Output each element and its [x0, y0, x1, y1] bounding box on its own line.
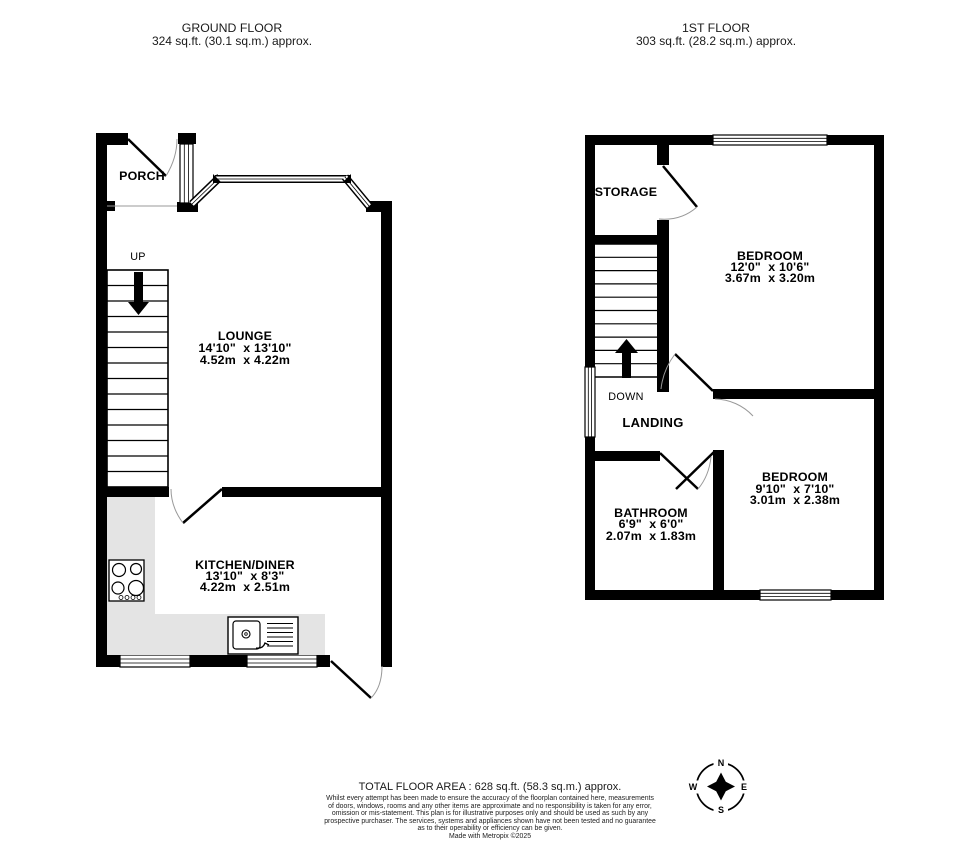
- first-floor-header: 1ST FLOOR 303 sq.ft. (28.2 sq.m.) approx…: [566, 22, 866, 48]
- porch-label: PORCH: [92, 169, 192, 183]
- total-floor-area: TOTAL FLOOR AREA : 628 sq.ft. (58.3 sq.m…: [0, 781, 980, 793]
- kitchen-label: KITCHEN/DINER 13'10" x 8'3" 4.22m x 2.51…: [145, 560, 345, 593]
- stairs-down-arrow-icon: [615, 339, 638, 378]
- bedroom2-window: [760, 590, 831, 600]
- lounge-label: LOUNGE 14'10" x 13'10" 4.52m x 4.22m: [145, 330, 345, 366]
- disclaimer-line: prospective purchaser. The services, sys…: [0, 818, 980, 826]
- bedroom2-label: BEDROOM 9'10" x 7'10" 3.01m x 2.38m: [695, 472, 895, 507]
- bedroom1-metric: 3.67m x 3.20m: [670, 273, 870, 284]
- first-stairs: [595, 244, 657, 378]
- disclaimer-line: Whilst every attempt has been made to en…: [0, 795, 980, 803]
- ground-floor-plan: [96, 133, 392, 698]
- lounge-kitchen-door: [171, 489, 222, 523]
- storage-label: STORAGE: [576, 185, 676, 199]
- disclaimer: Whilst every attempt has been made to en…: [0, 795, 980, 840]
- floorplan-page: { "header": { "ground": { "title": "GROU…: [0, 0, 980, 841]
- disclaimer-line: as to their operability or efficiency ca…: [0, 825, 980, 833]
- credit-line: Made with Metropix ©2025: [0, 833, 980, 841]
- compass-north-label: N: [714, 757, 728, 769]
- disclaimer-line: of doors, windows, rooms and any other i…: [0, 803, 980, 811]
- first-floor-area: 303 sq.ft. (28.2 sq.m.) approx.: [566, 35, 866, 48]
- disclaimer-line: omission or mis-statement. This plan is …: [0, 810, 980, 818]
- kitchen-window-right: [247, 655, 317, 667]
- ground-stairs: [107, 270, 168, 487]
- landing-window: [585, 367, 595, 437]
- bathroom-metric: 2.07m x 1.83m: [551, 531, 751, 543]
- kitchen-exterior-door: [331, 661, 382, 698]
- ground-floor-area: 324 sq.ft. (30.1 sq.m.) approx.: [82, 35, 382, 48]
- sink-icon: [228, 617, 298, 654]
- ground-floor-header: GROUND FLOOR 324 sq.ft. (30.1 sq.m.) app…: [82, 22, 382, 48]
- down-label: DOWN: [596, 391, 656, 403]
- up-label: UP: [108, 251, 168, 263]
- bedroom2-metric: 3.01m x 2.38m: [695, 495, 895, 507]
- landing-label: LANDING: [603, 415, 703, 430]
- floorplan-canvas: [0, 0, 980, 841]
- kitchen-window-left: [120, 655, 190, 667]
- lounge-metric: 4.52m x 4.22m: [145, 354, 345, 366]
- bay-window: [192, 174, 369, 206]
- bedroom1-label: BEDROOM 12'0" x 10'6" 3.67m x 3.20m: [670, 251, 870, 284]
- kitchen-metric: 4.22m x 2.51m: [145, 582, 345, 593]
- bedroom1-window: [713, 135, 827, 145]
- hob-icon: [109, 560, 144, 601]
- bathroom-label: BATHROOM 6'9" x 6'0" 2.07m x 1.83m: [551, 508, 751, 543]
